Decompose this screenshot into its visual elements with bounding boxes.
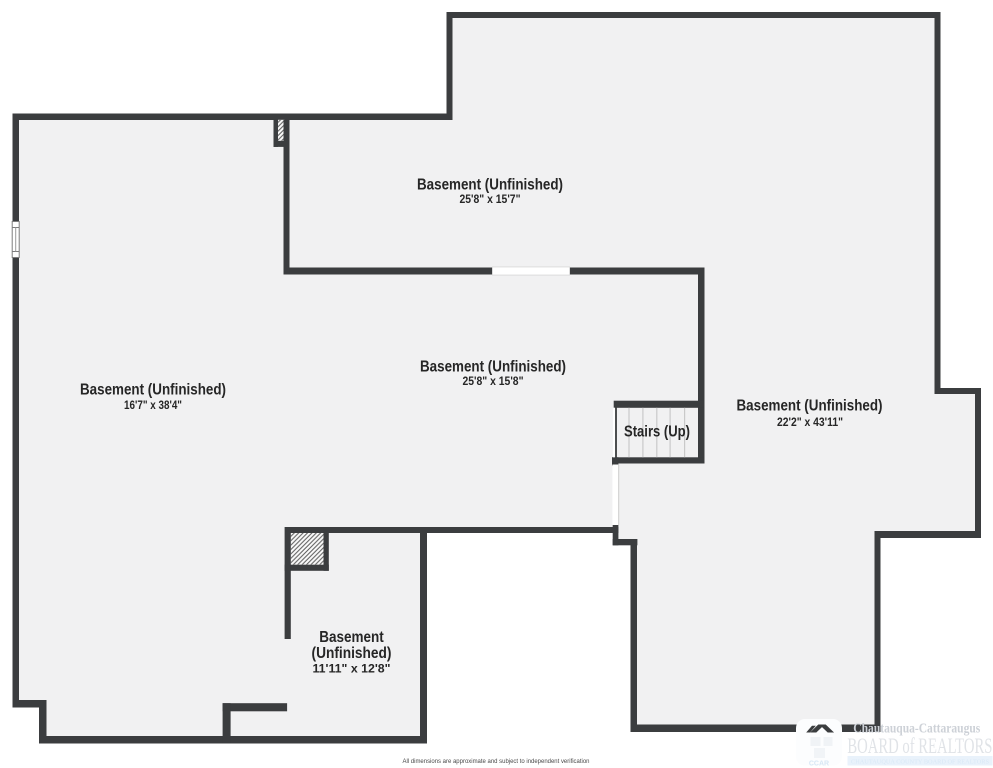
svg-text:Basement (Unfinished): Basement (Unfinished) — [80, 382, 226, 399]
svg-text:(Unfinished): (Unfinished) — [312, 645, 392, 662]
svg-text:CHAUTAUQUA COUNTY BOARD OF REA: CHAUTAUQUA COUNTY BOARD OF REALTORS — [851, 759, 989, 766]
svg-text:CCAR: CCAR — [809, 761, 829, 768]
svg-text:Basement (Unfinished): Basement (Unfinished) — [737, 398, 883, 415]
svg-text:Basement: Basement — [319, 629, 384, 646]
svg-text:Basement (Unfinished): Basement (Unfinished) — [417, 177, 563, 194]
svg-text:11'11" x 12'8": 11'11" x 12'8" — [313, 664, 391, 676]
svg-text:All dimensions are approximate: All dimensions are approximate and subje… — [403, 758, 590, 765]
svg-text:22'2" x 43'11": 22'2" x 43'11" — [777, 417, 843, 429]
svg-text:Basement (Unfinished): Basement (Unfinished) — [420, 359, 566, 376]
svg-text:BOARD of REALTORS: BOARD of REALTORS — [847, 733, 992, 758]
svg-text:Stairs (Up): Stairs (Up) — [624, 424, 690, 441]
svg-text:25'8" x 15'7": 25'8" x 15'7" — [460, 194, 521, 206]
svg-text:16'7" x 38'4": 16'7" x 38'4" — [124, 400, 182, 412]
svg-text:25'8" x 15'8": 25'8" x 15'8" — [463, 376, 524, 388]
